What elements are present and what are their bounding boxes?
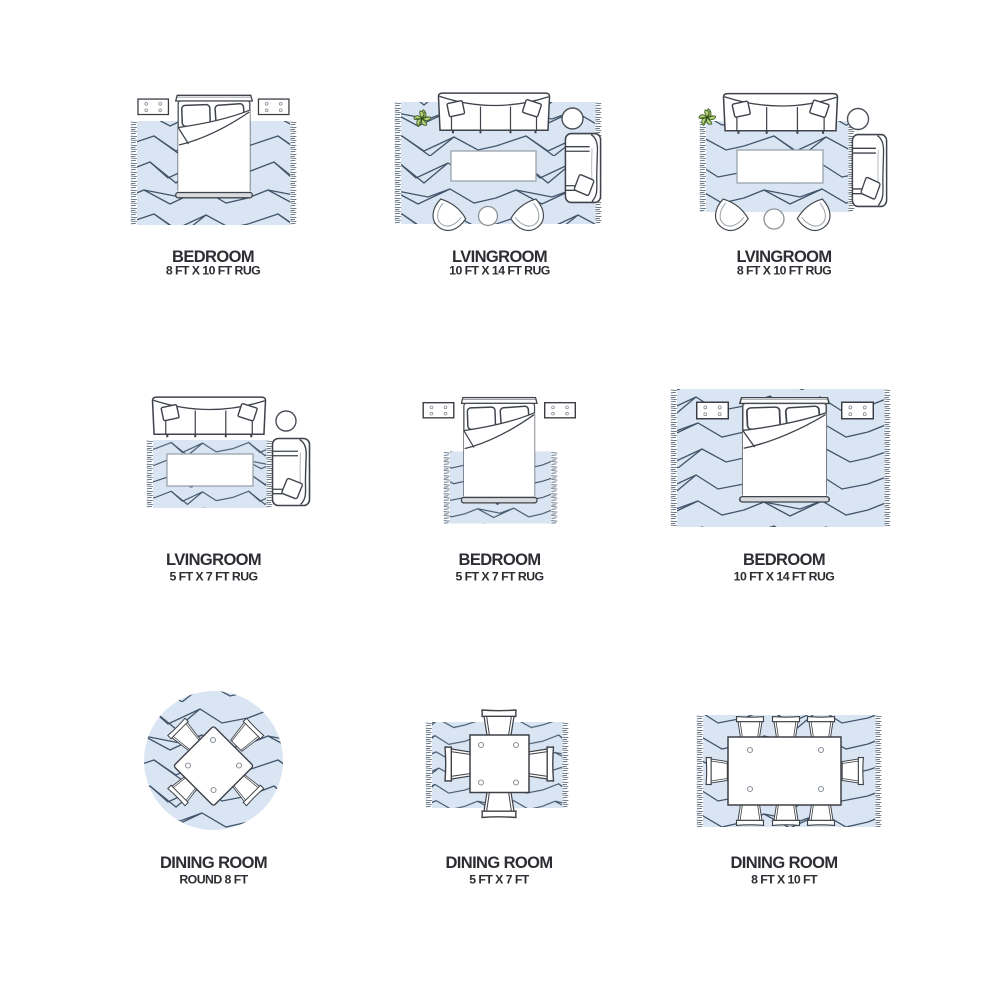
svg-text:10 FT X 14 FT RUG: 10 FT X 14 FT RUG: [734, 570, 835, 584]
svg-text:5 FT X 7 FT RUG: 5 FT X 7 FT RUG: [455, 570, 543, 584]
svg-text:5 FT X 7 FT RUG: 5 FT X 7 FT RUG: [169, 570, 257, 584]
svg-text:10 FT X 14 FT RUG: 10 FT X 14 FT RUG: [449, 264, 550, 278]
svg-text:ROUND 8 FT: ROUND 8 FT: [179, 873, 248, 887]
svg-text:8 FT X 10 FT RUG: 8 FT X 10 FT RUG: [737, 264, 831, 278]
svg-text:BEDROOM: BEDROOM: [459, 551, 541, 569]
svg-text:BEDROOM: BEDROOM: [743, 551, 825, 569]
svg-text:DINING ROOM: DINING ROOM: [160, 854, 267, 872]
svg-text:8 FT X 10 FT RUG: 8 FT X 10 FT RUG: [166, 264, 260, 278]
svg-text:DINING ROOM: DINING ROOM: [730, 854, 837, 872]
svg-text:8 FT X 10 FT: 8 FT X 10 FT: [751, 873, 818, 887]
svg-text:LVINGROOM: LVINGROOM: [166, 551, 261, 569]
svg-text:DINING ROOM: DINING ROOM: [445, 854, 552, 872]
svg-text:5 FT X 7 FT: 5 FT X 7 FT: [469, 873, 530, 887]
